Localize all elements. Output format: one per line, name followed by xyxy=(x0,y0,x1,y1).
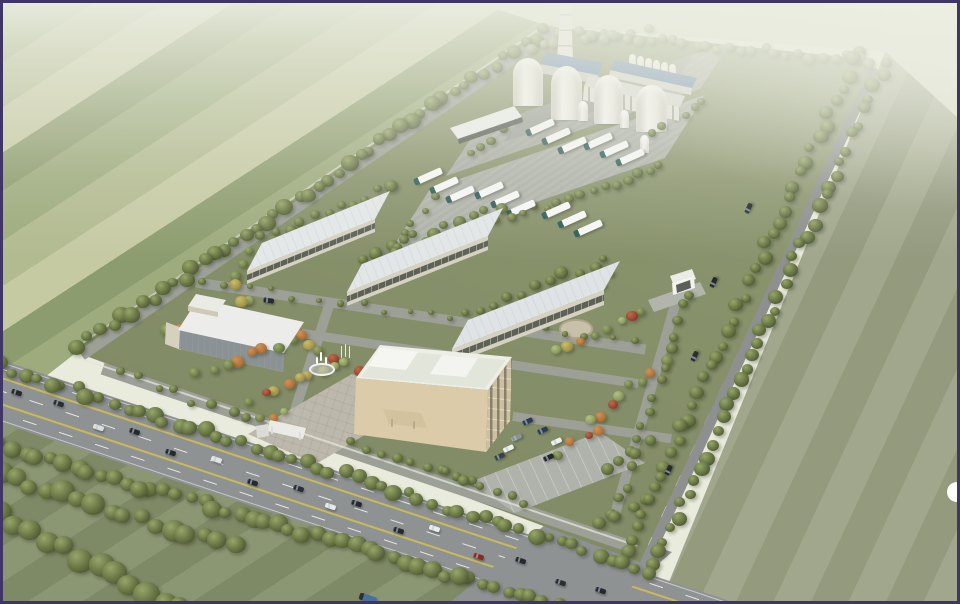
tree xyxy=(168,488,182,500)
fountain-spray xyxy=(320,352,322,361)
tree xyxy=(447,316,453,321)
tree xyxy=(310,210,320,219)
tree xyxy=(6,369,17,379)
tree xyxy=(742,274,755,286)
tree xyxy=(262,389,270,397)
tree xyxy=(334,169,344,178)
tree xyxy=(155,281,170,295)
tree xyxy=(846,127,857,137)
tree xyxy=(666,343,678,354)
tree xyxy=(548,38,559,48)
tree xyxy=(223,360,234,370)
tree xyxy=(109,399,121,410)
tree xyxy=(672,316,682,325)
tree xyxy=(864,78,879,92)
fountain-spray xyxy=(316,357,318,364)
tree xyxy=(476,482,484,489)
tree xyxy=(341,155,358,171)
tree xyxy=(466,511,479,523)
tree xyxy=(783,263,798,277)
tree xyxy=(808,219,822,232)
tree xyxy=(689,386,704,399)
tree xyxy=(819,106,833,119)
tree xyxy=(130,481,148,497)
tree xyxy=(831,95,843,106)
tree xyxy=(614,555,629,569)
tree xyxy=(467,150,474,157)
tree xyxy=(813,130,828,144)
tree xyxy=(682,112,690,119)
tree xyxy=(717,410,731,423)
tree xyxy=(367,545,384,561)
tree xyxy=(526,44,536,53)
gate-post xyxy=(271,426,273,434)
tree xyxy=(561,341,573,352)
tree xyxy=(247,284,253,289)
tree xyxy=(591,332,599,340)
tree xyxy=(645,435,657,445)
tree xyxy=(650,544,665,558)
tree xyxy=(734,372,750,386)
tree xyxy=(649,482,661,493)
tree xyxy=(661,364,670,372)
tree xyxy=(685,490,695,499)
storage-tank-large xyxy=(513,58,543,106)
tree xyxy=(3,441,22,458)
tree xyxy=(155,417,168,428)
car xyxy=(262,297,274,303)
tree xyxy=(665,447,677,457)
tree xyxy=(493,488,502,496)
tree xyxy=(399,235,409,244)
tree xyxy=(595,412,606,422)
storage-tank-small xyxy=(578,101,588,121)
tree xyxy=(406,220,414,227)
tree xyxy=(346,437,355,445)
fountain-basin xyxy=(309,363,335,376)
tree xyxy=(629,448,641,459)
tree xyxy=(745,349,758,361)
tree xyxy=(114,508,130,523)
tree xyxy=(707,440,719,451)
tree xyxy=(507,213,517,222)
storage-tank-small xyxy=(620,110,629,128)
tree xyxy=(632,521,644,531)
tree xyxy=(601,463,614,475)
tree xyxy=(528,529,546,545)
tree xyxy=(424,96,441,111)
tree xyxy=(632,168,643,178)
tree xyxy=(339,358,347,365)
tree xyxy=(757,236,770,248)
tree xyxy=(633,36,644,46)
tree xyxy=(301,189,315,202)
tree xyxy=(694,462,710,476)
tree xyxy=(198,278,206,285)
tree xyxy=(508,491,517,500)
tree xyxy=(784,192,795,202)
tree xyxy=(381,310,387,316)
tree xyxy=(109,320,121,331)
tree xyxy=(498,51,508,60)
tree xyxy=(676,38,685,47)
tree xyxy=(618,317,626,324)
tree xyxy=(384,180,398,192)
tree xyxy=(479,510,493,523)
tree xyxy=(626,311,637,321)
tree xyxy=(439,221,448,229)
storage-tank-large xyxy=(594,75,623,124)
tree xyxy=(697,371,709,382)
tree xyxy=(758,251,773,265)
tree xyxy=(286,454,297,464)
tree xyxy=(408,309,413,314)
tree xyxy=(623,484,633,493)
tree xyxy=(169,385,178,393)
tree xyxy=(858,102,870,113)
tree xyxy=(687,401,697,410)
tree xyxy=(320,467,334,479)
tree xyxy=(793,238,804,248)
tree xyxy=(610,335,616,341)
tree xyxy=(635,510,645,519)
tree xyxy=(644,24,654,33)
tree xyxy=(392,453,403,463)
tree xyxy=(719,397,734,411)
tree xyxy=(768,49,777,58)
tree xyxy=(674,497,685,507)
tree xyxy=(426,499,438,510)
fountain-spray xyxy=(325,357,327,364)
tree xyxy=(229,407,240,417)
tree xyxy=(842,70,858,84)
tree xyxy=(284,379,295,389)
tree xyxy=(513,523,525,534)
tree xyxy=(476,307,485,315)
tree xyxy=(612,181,622,190)
tree xyxy=(752,324,765,336)
tree xyxy=(408,230,417,238)
tree xyxy=(181,421,197,435)
tree xyxy=(373,133,386,145)
tree xyxy=(565,437,575,446)
tree xyxy=(688,475,700,485)
tree xyxy=(25,449,43,465)
tree xyxy=(613,493,623,502)
tree xyxy=(863,58,875,68)
tree xyxy=(725,43,734,51)
tree xyxy=(489,302,497,310)
tree xyxy=(628,564,639,574)
tree xyxy=(294,217,304,226)
tree xyxy=(839,85,849,94)
edge-bump xyxy=(947,482,960,502)
tree xyxy=(268,286,274,291)
tree xyxy=(562,331,568,336)
tree xyxy=(461,309,469,316)
tree xyxy=(207,531,226,549)
tree xyxy=(794,49,802,56)
canopy-column xyxy=(391,419,393,427)
tree xyxy=(255,231,265,240)
tree xyxy=(647,37,655,44)
tree xyxy=(247,348,257,357)
tree xyxy=(149,295,162,306)
tree xyxy=(554,266,568,278)
tree xyxy=(672,419,687,433)
tree xyxy=(53,454,73,472)
tree xyxy=(134,372,142,380)
tree xyxy=(377,451,385,458)
tree xyxy=(545,276,556,286)
tree xyxy=(170,597,188,604)
tree xyxy=(449,505,464,518)
tree xyxy=(665,523,675,532)
tree xyxy=(674,436,686,447)
tree xyxy=(627,461,637,470)
tree xyxy=(174,525,195,544)
flagpole xyxy=(345,344,346,357)
tree xyxy=(831,171,844,183)
tree xyxy=(244,398,253,406)
tree xyxy=(245,247,253,254)
tree xyxy=(840,147,851,157)
tree xyxy=(654,161,662,168)
tree xyxy=(576,338,585,346)
tree xyxy=(632,435,641,443)
tree xyxy=(189,368,200,378)
tree xyxy=(592,517,606,529)
tree xyxy=(713,426,724,436)
tree xyxy=(487,581,500,593)
tree xyxy=(492,62,503,72)
tree xyxy=(431,193,439,200)
tree xyxy=(537,23,549,34)
tree xyxy=(691,103,699,111)
tree xyxy=(519,500,528,508)
tree xyxy=(781,279,792,289)
tree xyxy=(226,536,245,553)
tree xyxy=(645,408,654,416)
tree xyxy=(450,567,470,585)
tree xyxy=(642,567,657,580)
tree xyxy=(519,210,526,216)
tree xyxy=(877,69,890,81)
tree xyxy=(750,263,761,273)
tree xyxy=(240,229,254,241)
tree xyxy=(296,330,306,339)
tree xyxy=(337,201,346,209)
tree xyxy=(624,380,633,388)
tree xyxy=(669,333,678,341)
tree xyxy=(280,408,288,415)
tree xyxy=(818,53,828,62)
tree xyxy=(478,69,491,80)
tree xyxy=(507,45,522,58)
tree xyxy=(623,35,632,43)
tree xyxy=(384,485,402,501)
tree xyxy=(292,527,310,543)
tree xyxy=(736,47,745,55)
rendered-scene-root xyxy=(0,0,960,604)
gate-post xyxy=(299,432,301,440)
stage xyxy=(0,0,960,604)
tree xyxy=(187,400,195,407)
tree xyxy=(81,493,105,514)
tree xyxy=(786,251,797,261)
tree xyxy=(230,279,241,289)
tree xyxy=(251,444,263,455)
tree xyxy=(534,595,548,604)
tree xyxy=(76,389,93,405)
tree xyxy=(881,58,892,68)
canopy-column xyxy=(413,421,415,429)
tree xyxy=(706,360,717,370)
tree xyxy=(441,467,449,475)
tree xyxy=(585,415,596,425)
tree xyxy=(585,432,593,439)
tree xyxy=(645,368,656,378)
tree xyxy=(576,546,587,556)
tree xyxy=(179,273,195,287)
tree xyxy=(553,598,565,604)
tree xyxy=(700,41,710,50)
tree xyxy=(235,296,247,307)
tree xyxy=(529,280,540,290)
tree xyxy=(751,338,764,349)
tree xyxy=(497,519,512,533)
tree xyxy=(123,307,140,323)
tree xyxy=(768,290,783,304)
flagpole xyxy=(349,346,350,358)
tree xyxy=(834,157,844,166)
tree xyxy=(362,446,371,454)
flagpole xyxy=(341,346,342,358)
tree xyxy=(812,198,828,212)
tree xyxy=(373,185,381,193)
tree xyxy=(238,260,248,269)
